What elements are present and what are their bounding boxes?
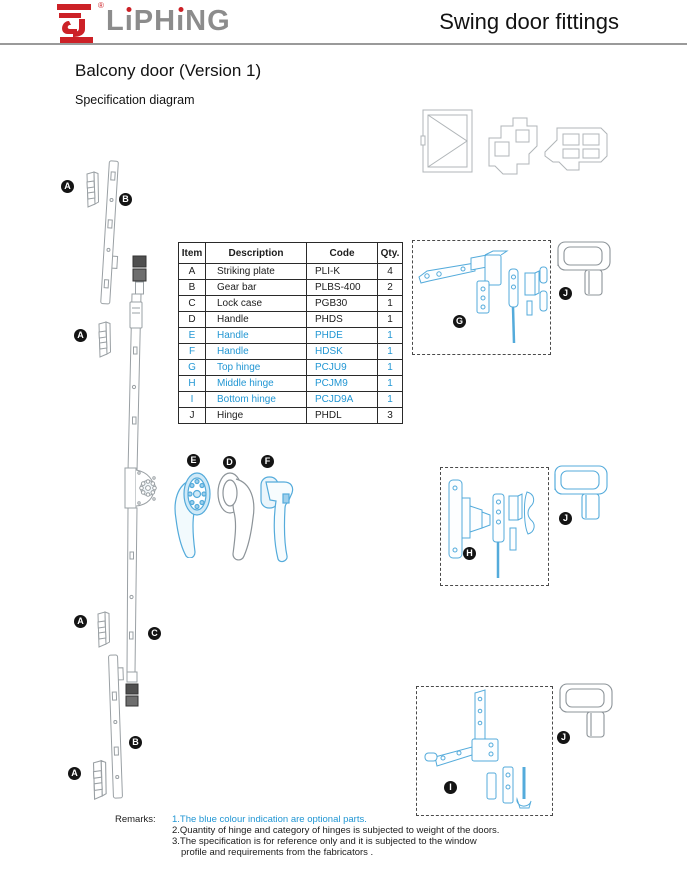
- table-row: C Lock case PGB30 1: [179, 296, 403, 312]
- part-a-striking-plate: [88, 758, 110, 808]
- label-f: F: [261, 455, 274, 468]
- remark-line-4: profile and requirements from the fabric…: [181, 847, 373, 858]
- part-e-handle: [169, 468, 213, 563]
- label-h: H: [463, 547, 476, 560]
- label-d: D: [223, 456, 236, 469]
- cell-qty: 1: [378, 360, 403, 376]
- part-c-lock-case: [110, 252, 166, 719]
- cell-qty: 1: [378, 344, 403, 360]
- profile-section-icon: [483, 112, 611, 189]
- label-a-1: A: [61, 180, 74, 193]
- table-row-optional: E Handle PHDE 1: [179, 328, 403, 344]
- label-b-2: B: [129, 736, 142, 749]
- cell-code: HDSK: [307, 344, 378, 360]
- cell-code: PLI-K: [307, 264, 378, 280]
- spec-sheet-page: ® LıPHıNG Swing door fittings Balcony do…: [0, 0, 687, 882]
- header-divider: [0, 43, 687, 45]
- cell-qty: 1: [378, 376, 403, 392]
- part-i-bottom-hinge-group: [416, 686, 553, 816]
- cell-qty: 1: [378, 296, 403, 312]
- cell-code: PHDS: [307, 312, 378, 328]
- cell-code: PHDL: [307, 408, 378, 424]
- label-c: C: [148, 627, 161, 640]
- cell-item: B: [179, 280, 206, 296]
- cell-item: G: [179, 360, 206, 376]
- part-g-top-hinge-group: [412, 240, 551, 355]
- table-row: J Hinge PHDL 3: [179, 408, 403, 424]
- document-title: Swing door fittings: [439, 9, 619, 35]
- cell-description: Striking plate: [206, 264, 307, 280]
- label-i: I: [444, 781, 457, 794]
- cell-item: F: [179, 344, 206, 360]
- page-subtitle: Specification diagram: [75, 93, 195, 107]
- label-a-3: A: [74, 615, 87, 628]
- remark-line-1: 1.The blue colour indication are optiona…: [172, 814, 367, 825]
- label-j-2: J: [559, 512, 572, 525]
- col-header-code: Code: [307, 243, 378, 264]
- part-d-handle: [215, 468, 261, 568]
- cell-description: Top hinge: [206, 360, 307, 376]
- cell-description: Handle: [206, 344, 307, 360]
- label-e: E: [187, 454, 200, 467]
- registered-trademark: ®: [98, 1, 104, 10]
- table-row-optional: I Bottom hinge PCJD9A 1: [179, 392, 403, 408]
- page-title: Balcony door (Version 1): [75, 61, 261, 81]
- cell-description: Handle: [206, 328, 307, 344]
- cell-item: A: [179, 264, 206, 280]
- col-header-qty: Qty.: [378, 243, 403, 264]
- part-h-middle-hinge-group: [440, 467, 549, 586]
- table-row: A Striking plate PLI-K 4: [179, 264, 403, 280]
- cell-code: PHDE: [307, 328, 378, 344]
- cell-qty: 2: [378, 280, 403, 296]
- remarks-label: Remarks:: [115, 814, 156, 825]
- label-j-1: J: [559, 287, 572, 300]
- cell-item: E: [179, 328, 206, 344]
- cell-code: PGB30: [307, 296, 378, 312]
- cell-code: PLBS-400: [307, 280, 378, 296]
- cell-code: PCJM9: [307, 376, 378, 392]
- label-j-3: J: [557, 731, 570, 744]
- label-b-1: B: [119, 193, 132, 206]
- cell-item: J: [179, 408, 206, 424]
- cell-item: H: [179, 376, 206, 392]
- table-row-optional: G Top hinge PCJU9 1: [179, 360, 403, 376]
- brand-logo-icon: [56, 3, 98, 48]
- cell-item: C: [179, 296, 206, 312]
- cell-description: Middle hinge: [206, 376, 307, 392]
- cell-item: I: [179, 392, 206, 408]
- cell-qty: 4: [378, 264, 403, 280]
- cell-description: Lock case: [206, 296, 307, 312]
- window-symbol-icon: [420, 108, 476, 181]
- table-row-optional: H Middle hinge PCJM9 1: [179, 376, 403, 392]
- label-a-2: A: [74, 329, 87, 342]
- cell-description: Bottom hinge: [206, 392, 307, 408]
- label-a-4: A: [68, 767, 81, 780]
- cell-qty: 1: [378, 312, 403, 328]
- col-header-item: Item: [179, 243, 206, 264]
- spec-table: Item Description Code Qty. A Striking pl…: [178, 242, 403, 424]
- col-header-description: Description: [206, 243, 307, 264]
- label-g: G: [453, 315, 466, 328]
- table-row: D Handle PHDS 1: [179, 312, 403, 328]
- remark-line-2: 2.Quantity of hinge and category of hing…: [172, 825, 499, 836]
- remark-line-3: 3.The specification is for reference onl…: [172, 836, 477, 847]
- cell-item: D: [179, 312, 206, 328]
- table-row: B Gear bar PLBS-400 2: [179, 280, 403, 296]
- cell-description: Hinge: [206, 408, 307, 424]
- cell-code: PCJU9: [307, 360, 378, 376]
- part-f-handle: [258, 472, 298, 572]
- brand-wordmark: LıPHıNG: [106, 5, 231, 37]
- cell-description: Handle: [206, 312, 307, 328]
- cell-qty: 3: [378, 408, 403, 424]
- part-a-striking-plate: [93, 610, 113, 655]
- cell-qty: 1: [378, 328, 403, 344]
- cell-qty: 1: [378, 392, 403, 408]
- table-header-row: Item Description Code Qty.: [179, 243, 403, 264]
- table-row-optional: F Handle HDSK 1: [179, 344, 403, 360]
- cell-code: PCJD9A: [307, 392, 378, 408]
- cell-description: Gear bar: [206, 280, 307, 296]
